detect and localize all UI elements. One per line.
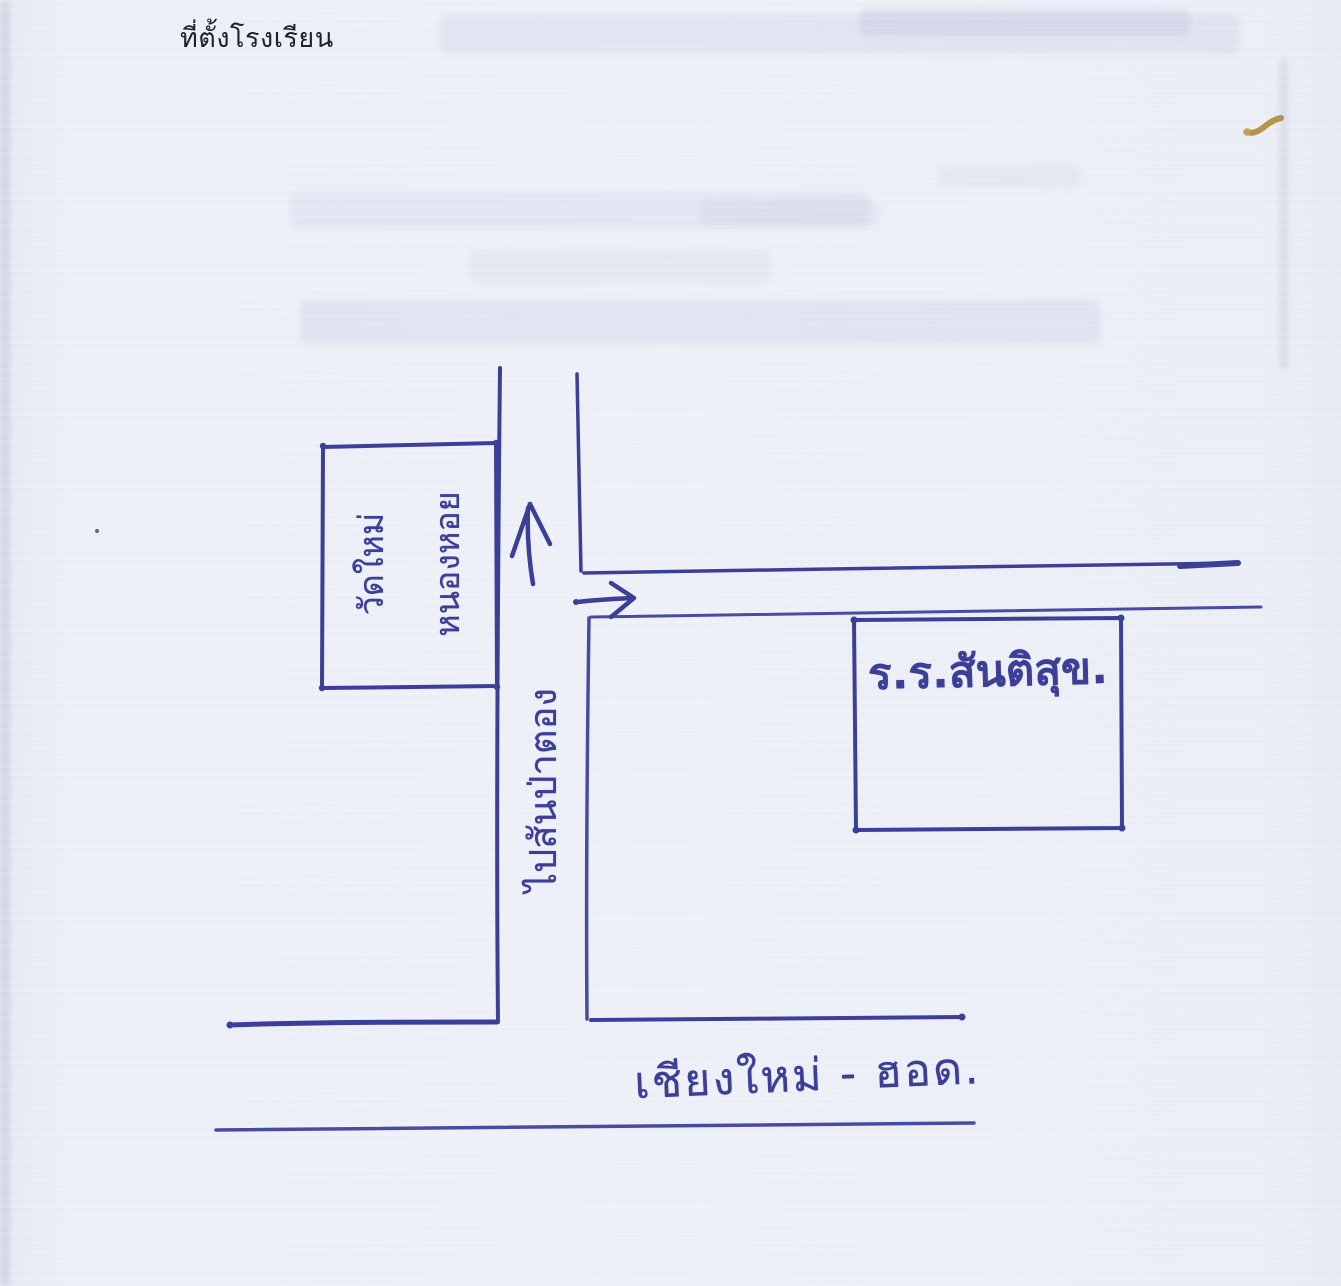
yellow-mark-dot <box>1243 128 1251 136</box>
north-arrow-icon <box>512 504 550 584</box>
scanned-page: { "page": { "title": "ที่ตั้งโรงเรียน" }… <box>0 0 1341 1286</box>
yellow-mark <box>1247 118 1281 133</box>
temple-label-line2: หนองหอย <box>410 491 486 636</box>
school-label: ร.ร.สันติสุข. <box>867 633 1119 710</box>
east-road <box>584 563 1261 617</box>
temple-label-line1: วัดใหม่ <box>334 513 410 616</box>
ink-speck <box>95 529 99 533</box>
temple-label: วัดใหม่ หนองหอย <box>330 444 490 684</box>
east-arrow-icon <box>573 583 634 617</box>
vertical-road-label: ไปสันป่าตอง <box>508 610 576 970</box>
